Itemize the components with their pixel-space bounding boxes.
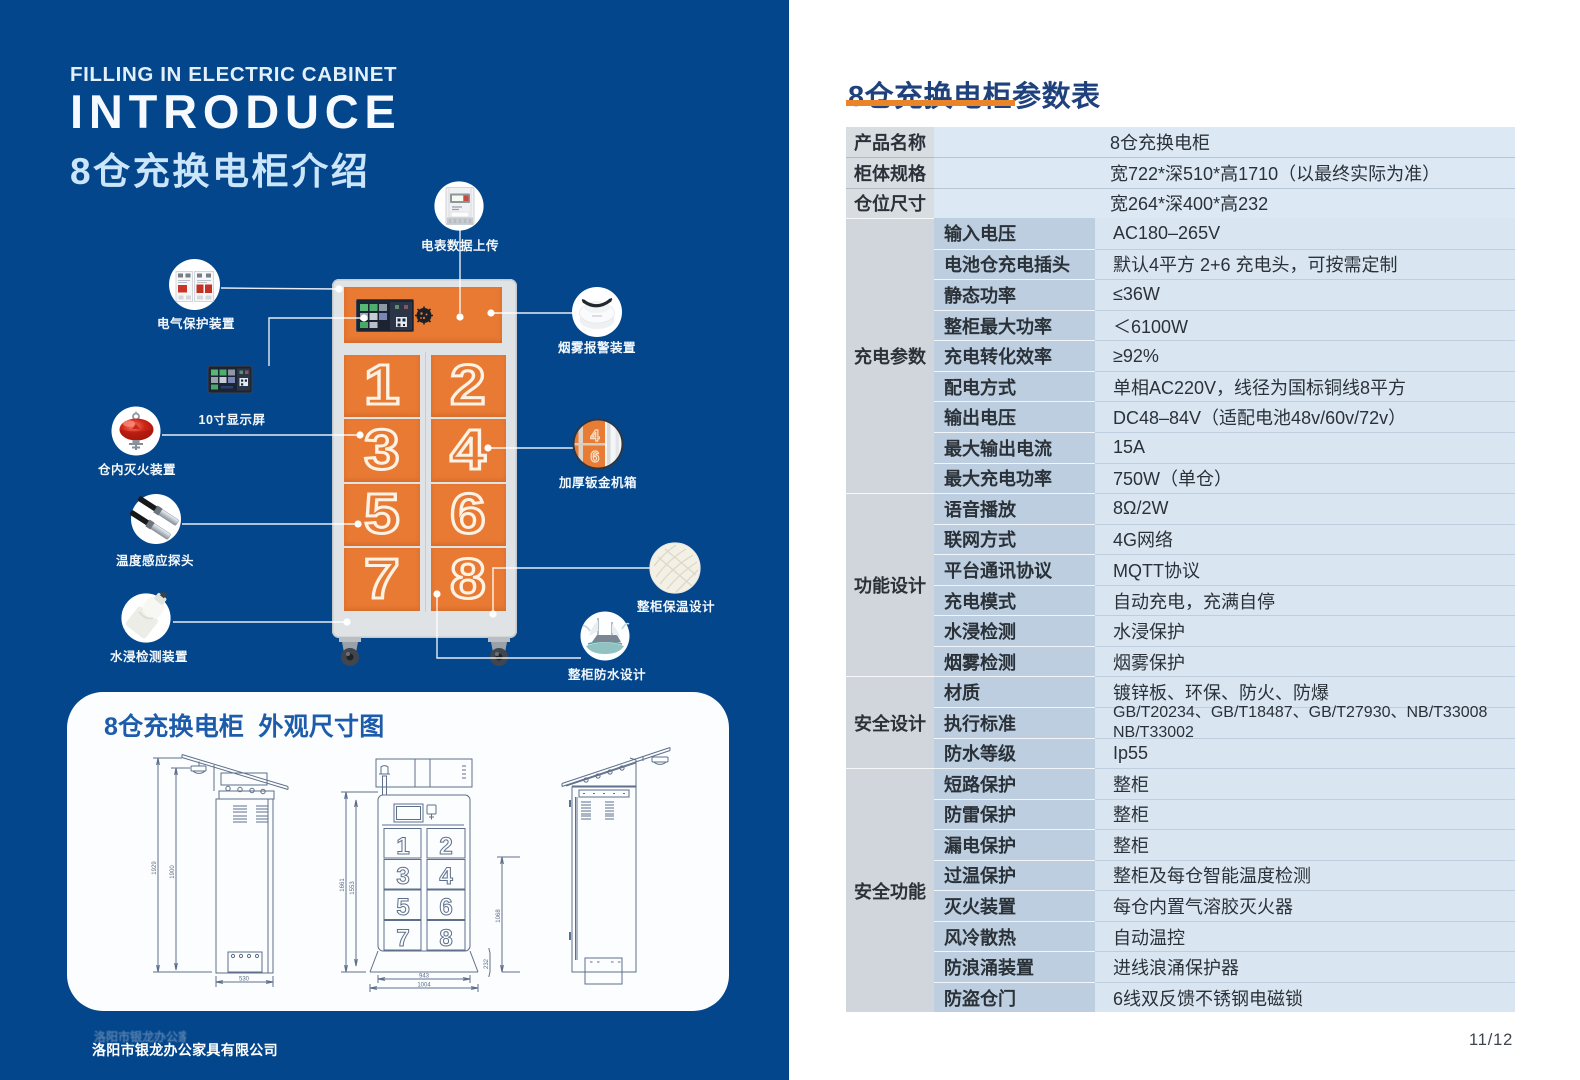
svg-text:4: 4: [591, 428, 600, 445]
svg-text:6: 6: [591, 449, 600, 466]
